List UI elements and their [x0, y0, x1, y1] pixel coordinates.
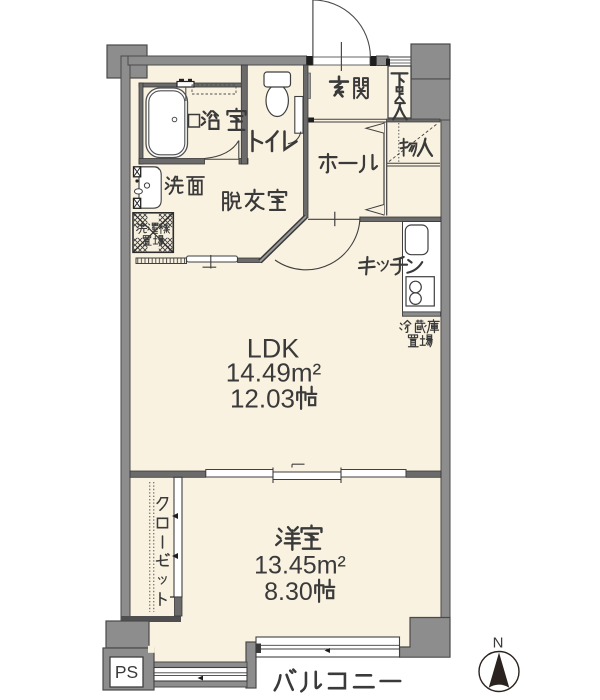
svg-text:PS: PS — [115, 662, 138, 682]
svg-text:N: N — [493, 635, 504, 652]
svg-text:12.03: 12.03 — [230, 384, 295, 414]
svg-text:13.45m²: 13.45m² — [254, 552, 346, 580]
svg-text:8.30: 8.30 — [264, 578, 313, 606]
